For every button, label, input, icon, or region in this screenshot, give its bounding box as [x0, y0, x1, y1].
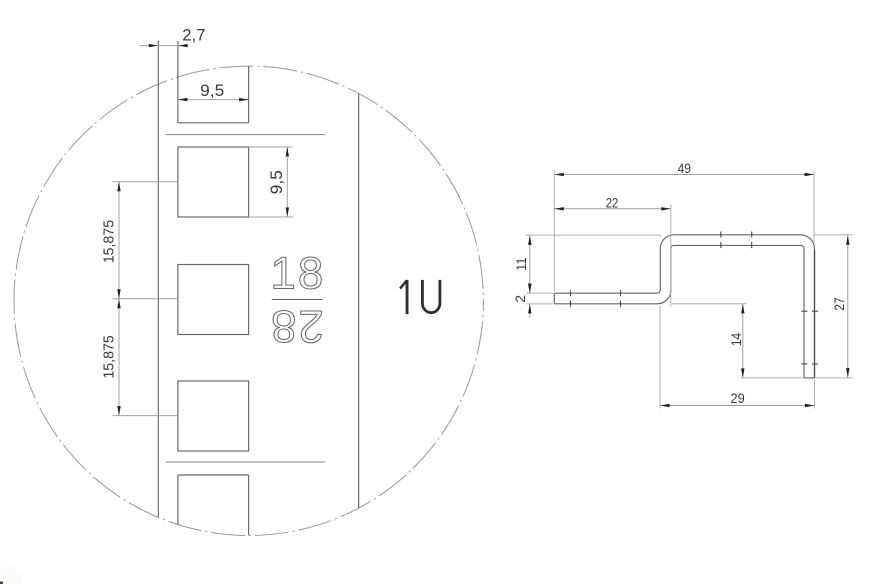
svg-text:14: 14 [728, 333, 744, 347]
svg-text:15,875: 15,875 [102, 335, 118, 378]
svg-text:2,7: 2,7 [182, 27, 205, 45]
svg-text:29: 29 [731, 390, 745, 406]
svg-text:22: 22 [606, 194, 619, 210]
svg-text:18: 18 [270, 248, 325, 299]
svg-text:9,5: 9,5 [200, 82, 224, 100]
svg-text:28: 28 [269, 301, 324, 352]
svg-text:11: 11 [513, 257, 529, 271]
svg-text:49: 49 [678, 160, 692, 176]
svg-text:27: 27 [831, 297, 847, 311]
svg-text:9,5: 9,5 [268, 170, 286, 194]
svg-text:2: 2 [512, 295, 528, 303]
svg-text:15,875: 15,875 [102, 220, 118, 263]
